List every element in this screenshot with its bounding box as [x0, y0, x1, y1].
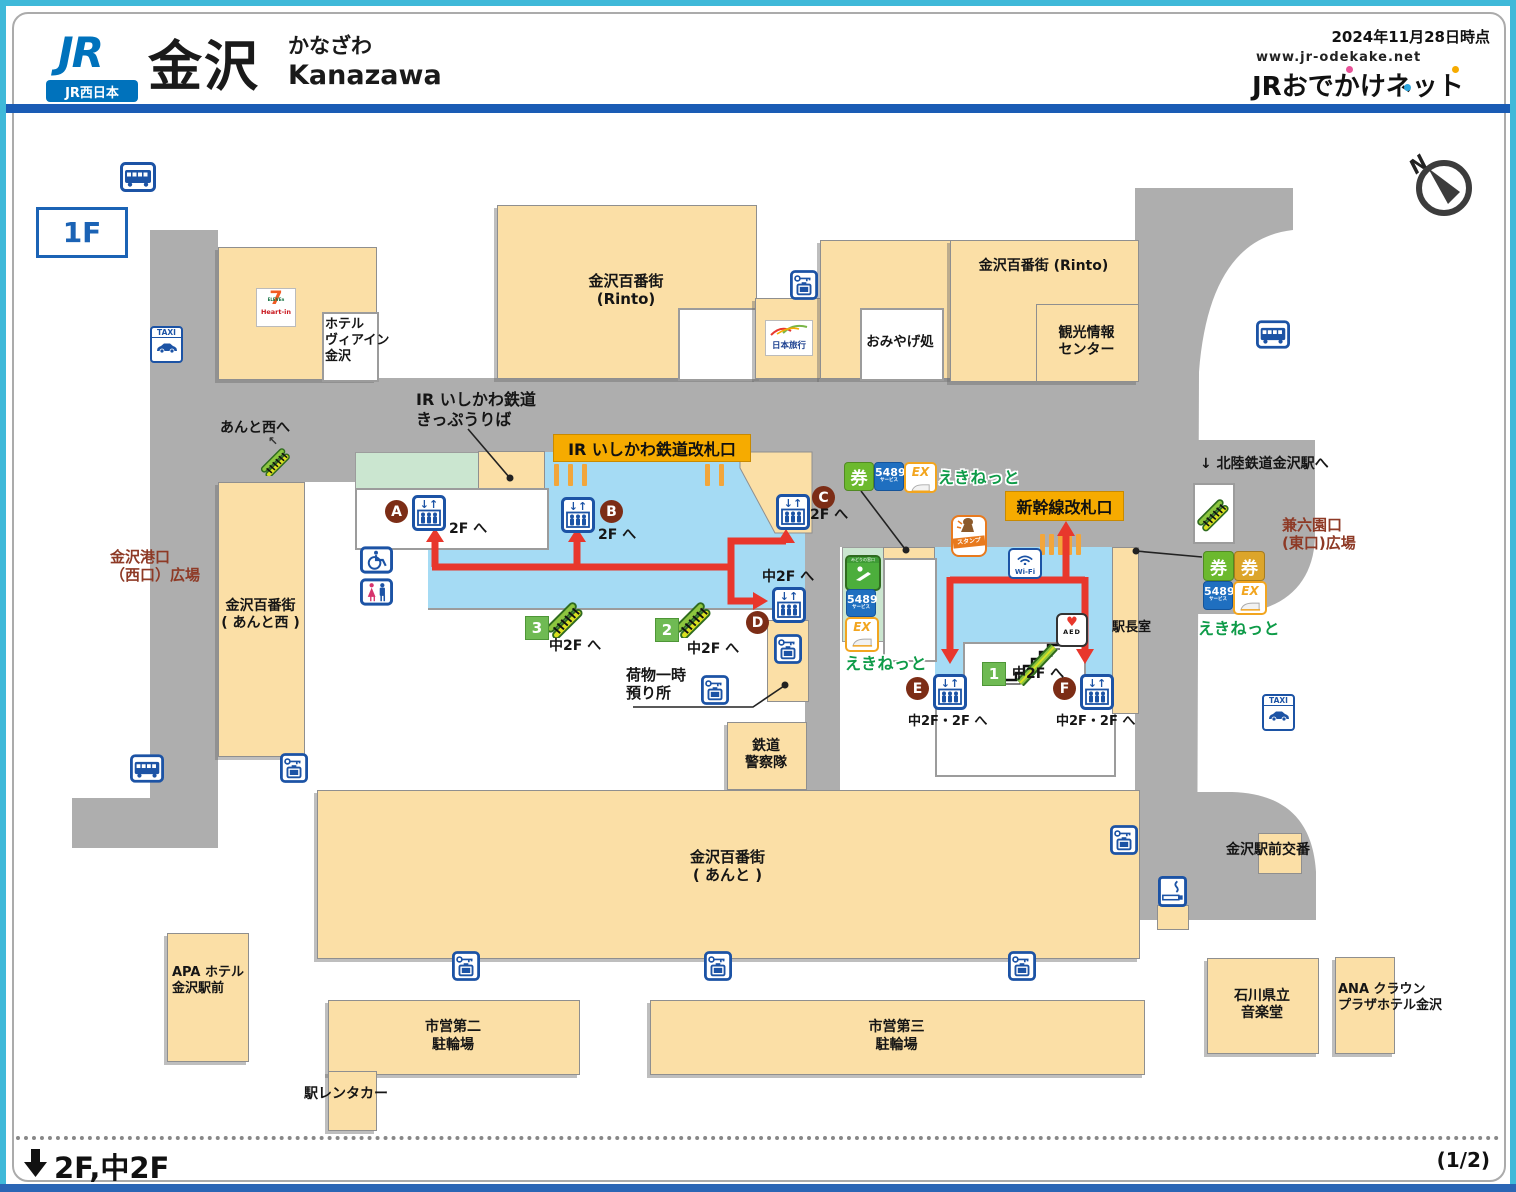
- coin-locker-icon: [280, 753, 308, 783]
- taxi-icon: TAXI: [150, 326, 183, 363]
- midori-no-madoguchi-icon: みどりの窓口: [845, 555, 881, 591]
- eki-net-logo: えきねっと: [1198, 615, 1280, 639]
- label-koban: 金沢駅前交番: [1226, 842, 1310, 859]
- eki-net-logo: えきねっと: [938, 464, 1020, 488]
- compass-icon: [1406, 148, 1476, 218]
- station-map-page: JR JR西日本 金沢 かなざわ Kanazawa 2024年11月28日時点 …: [0, 0, 1516, 1192]
- elevator-b-badge: B: [600, 500, 623, 523]
- nihon-ryoko-logo: 日本旅行: [765, 320, 813, 356]
- escalator-icon: [545, 596, 583, 638]
- label-ongakudo: 石川県立 音楽堂: [1207, 958, 1317, 1052]
- elevator-d-badge: D: [746, 611, 769, 634]
- elevator-icon: [933, 674, 967, 710]
- ex-icon: EX: [1233, 581, 1267, 615]
- label-ir-office: IR いしかわ鉄道 きっぷうりば: [416, 390, 536, 429]
- ticket-machine-icon: 券: [1234, 551, 1265, 581]
- aed-icon: ♥AED: [1056, 613, 1088, 647]
- coin-locker-icon: [790, 270, 818, 300]
- escalator-1-badge: 1: [982, 662, 1006, 686]
- label-rinto-east: 金沢百番街 (Rinto): [950, 258, 1137, 275]
- label-apa: APA ホテル 金沢駅前: [172, 965, 244, 997]
- escalator-icon: [258, 444, 292, 476]
- coin-locker-icon: [701, 675, 729, 705]
- label-baggage: 荷物一時 預り所: [626, 666, 686, 703]
- elevator-icon: [776, 494, 810, 530]
- restroom-icon: [360, 578, 393, 606]
- smoking-area-icon: [1158, 876, 1187, 907]
- label-stationmaster: 駅長室: [1112, 620, 1168, 636]
- footer-floors: 2F,中2F: [54, 1145, 169, 1187]
- label-cycle2: 市営第二 駐輪場: [328, 1000, 578, 1073]
- dest-2f-a: 2F へ: [449, 521, 487, 538]
- down-arrow-icon: [24, 1148, 48, 1178]
- stamp-icon: スタンプ: [951, 515, 987, 557]
- floor-badge: 1F: [36, 207, 128, 258]
- footer-divider: [16, 1136, 1500, 1140]
- 5489-icon: 5489サービス: [846, 589, 876, 617]
- dest-m2f-d: 中2F へ: [762, 569, 814, 586]
- dest-m2f2f-e: 中2F・2F へ: [908, 714, 987, 730]
- ticket-machine-icon: 券: [844, 462, 874, 491]
- shinkansen-gate-label: 新幹線改札口: [1005, 491, 1124, 521]
- label-viainn: ホテル ヴィアイン 金沢: [325, 317, 389, 365]
- coin-locker-icon: [452, 951, 480, 981]
- taxi-icon: TAXI: [1262, 694, 1295, 731]
- label-anto-west: 金沢百番街 ( あんと西 ): [218, 598, 303, 632]
- bus-icon: [130, 754, 164, 783]
- bus-icon: [120, 162, 156, 192]
- ticket-machine-icon: 券: [1203, 551, 1234, 581]
- escalator-2-badge: 2: [655, 618, 679, 642]
- label-cycle3: 市営第三 駐輪場: [650, 1000, 1143, 1073]
- elevator-icon: [561, 497, 595, 533]
- label-ana: ANA クラウン プラザホテル金沢: [1338, 982, 1442, 1014]
- elevator-icon: [772, 587, 806, 623]
- label-anto-west-dir: あんと西へ: [220, 420, 290, 437]
- bus-icon: [1256, 320, 1290, 349]
- ex-icon: EX: [845, 617, 879, 652]
- elevator-e-badge: E: [906, 677, 929, 700]
- ir-gate-label: IR いしかわ鉄道改札口: [553, 434, 751, 462]
- label-tourist-info: 観光情報 センター: [1036, 304, 1137, 380]
- eki-net-logo: えきねっと: [845, 650, 927, 674]
- wheelchair-icon: [360, 546, 393, 574]
- dest-m2f-esc3: 中2F へ: [549, 638, 601, 655]
- seven-eleven-logo: 7 ELEVEn Heart-in: [256, 288, 296, 327]
- label-rentacar: 駅レンタカー: [304, 1086, 388, 1103]
- dest-m2f-esc1: 中2F へ: [1012, 666, 1064, 683]
- label-anto: 金沢百番街 ( あんと ): [317, 848, 1138, 885]
- elevator-c-badge: C: [812, 486, 835, 509]
- escalator-3-badge: 3: [525, 616, 549, 640]
- label-east-plaza: 兼六園口 (東口)広場: [1282, 516, 1356, 553]
- elevator-icon: [412, 495, 446, 531]
- ex-icon: EX: [904, 462, 937, 493]
- 5489-icon: 5489サービス: [1203, 581, 1233, 610]
- 5489-icon: 5489サービス: [874, 462, 904, 491]
- elevator-icon: [1080, 674, 1114, 710]
- dest-m2f2f-f: 中2F・2F へ: [1056, 714, 1135, 730]
- escalator-down-icon: [1196, 488, 1229, 536]
- label-hokutetsu: ↓ 北陸鉄道金沢駅へ: [1200, 456, 1420, 473]
- coin-locker-icon: [1008, 951, 1036, 981]
- label-omiyage: おみやげ処: [858, 308, 942, 377]
- label-west-plaza: 金沢港口 （西口）広場: [110, 548, 200, 585]
- wifi-icon: Wi-Fi: [1008, 548, 1042, 579]
- label-rinto-center: 金沢百番街 (Rinto): [497, 272, 755, 309]
- coin-locker-icon: [774, 634, 802, 664]
- elevator-a-badge: A: [385, 500, 408, 523]
- footer-page: (1/2): [1380, 1148, 1490, 1172]
- dest-2f-c: 2F へ: [810, 507, 848, 524]
- label-police: 鉄道 警察隊: [727, 722, 805, 788]
- dest-2f-b: 2F へ: [598, 527, 636, 544]
- coin-locker-icon: [704, 951, 732, 981]
- dest-m2f-esc2: 中2F へ: [687, 641, 739, 658]
